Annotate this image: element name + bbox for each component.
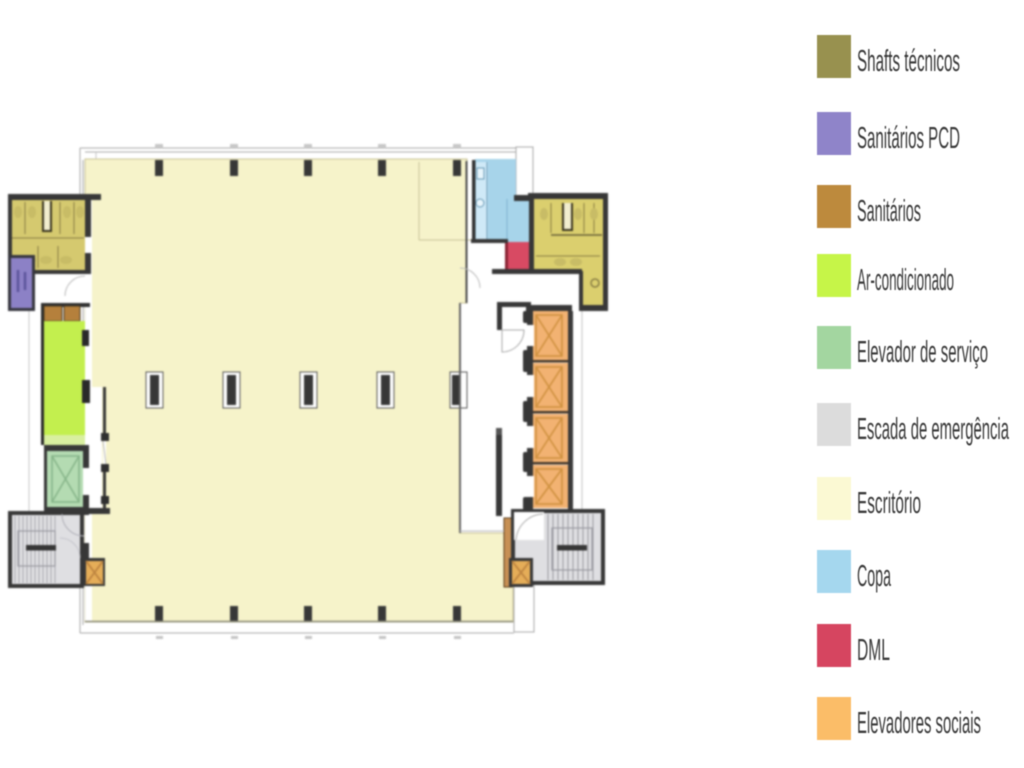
svg-text:Sanitários PCD: Sanitários PCD bbox=[857, 120, 960, 155]
svg-text:Elevadores sociais: Elevadores sociais bbox=[857, 705, 981, 740]
svg-text:Escritório: Escritório bbox=[857, 485, 921, 520]
svg-text:Shafts técnicos: Shafts técnicos bbox=[857, 43, 960, 78]
svg-text:Copa: Copa bbox=[857, 558, 891, 593]
svg-text:Escada de emergência: Escada de emergência bbox=[857, 411, 1009, 446]
svg-text:DML: DML bbox=[857, 632, 890, 667]
svg-text:Sanitários: Sanitários bbox=[857, 193, 921, 228]
svg-text:Elevador de serviço: Elevador de serviço bbox=[857, 334, 988, 369]
svg-text:Ar-condicionado: Ar-condicionado bbox=[857, 262, 954, 297]
